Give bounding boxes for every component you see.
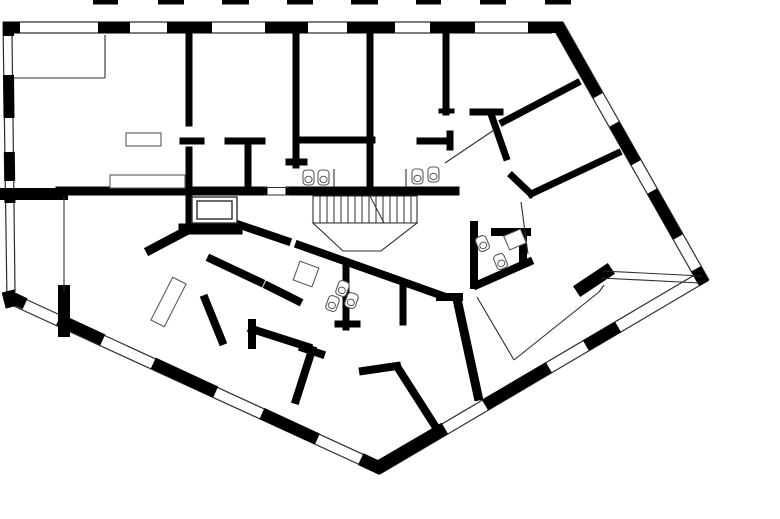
facade-wall-pier [153,363,215,392]
terrace-line-b [514,292,599,360]
elevator-car [197,201,232,219]
upper-floor-dash [93,0,118,5]
sideboard [151,277,186,327]
diag-wall-2-stub [512,176,531,194]
room6-partition [205,299,222,341]
room8-partition-cap [363,366,397,371]
shower-1 [293,261,319,287]
room7-wall [252,329,308,347]
facade-wall-pier [377,428,445,468]
spine2-wall-a [211,259,260,282]
table [126,133,161,146]
spine-wall-b [299,245,443,296]
facade-wall-pier [262,414,317,440]
upper-floor-dash [416,0,441,5]
spine-wall-a [237,224,287,241]
terrace-rail-outer [603,271,702,276]
right-lower-facade-outer-line [380,280,709,474]
room8-partition [398,368,437,429]
diag-wall-1 [503,83,577,122]
terrace-wall [582,272,606,288]
facade-wall-pier [8,296,25,304]
facade-wall-pier [652,191,678,237]
upper-floor-dash [287,0,313,5]
room5-wall [457,299,478,396]
facade-wall-pier [9,75,10,118]
stair-landing [313,223,417,251]
terrace-line-a [477,297,514,360]
facade-wall-pier [361,459,382,469]
spine2-wall-b [268,286,298,301]
diag-wall-2 [531,153,618,194]
upper-floor-dash [158,0,184,5]
right-upper-facade-outer-line [563,22,709,280]
upper-floor-dash [545,0,571,5]
floor-plan-page [0,0,780,519]
room7-partition-cap [303,348,321,354]
stair-walk-line [370,196,384,223]
wc-fixture [325,295,340,313]
room7-partition [296,350,312,400]
facade-wall-pier [485,367,549,405]
facade-wall-pier [698,276,705,280]
upper-floor-dash [222,0,249,5]
elevator-diag-wall [150,231,186,250]
right-upper-facade-inner-line [553,28,699,285]
terrace-line-c [599,285,604,292]
counter [110,175,185,188]
facade-wall-pier [586,327,618,346]
upper-floor-dash [351,0,378,5]
upper-floor-dash [480,0,506,5]
floor-plan-canvas [0,0,780,519]
stair-flight [313,196,417,223]
